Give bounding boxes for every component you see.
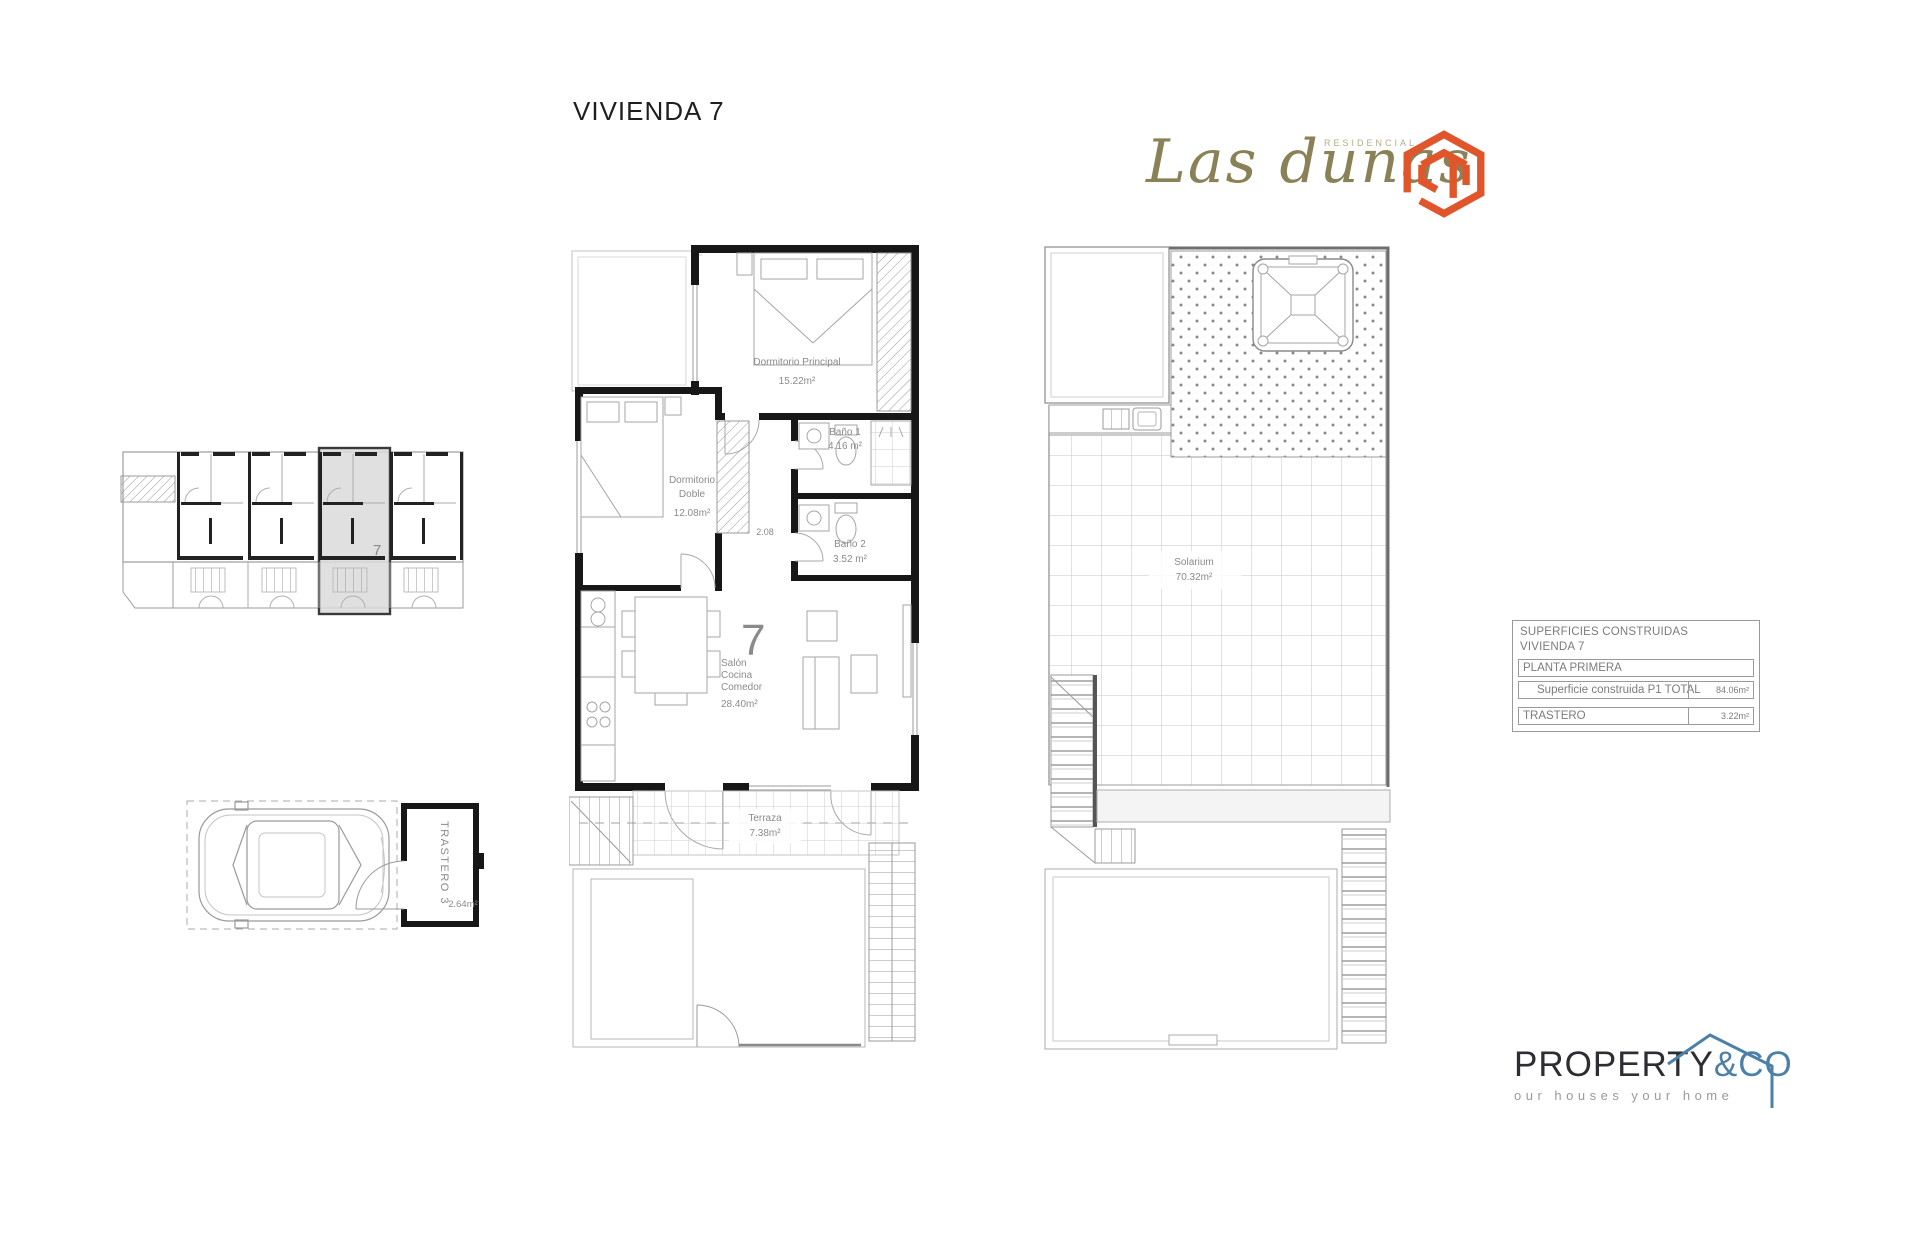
bed-principal (737, 253, 872, 365)
label-solarium-area: 70.32m² (1176, 572, 1213, 583)
site-unit7-label: 7 (373, 542, 381, 559)
label-salon-2: Cocina (721, 670, 753, 681)
wardrobe-doble (717, 421, 749, 533)
label-salon-3: Comedor (721, 682, 763, 693)
label-salon-1: Salón (721, 658, 747, 669)
areas-table-title: SUPERFICIES CONSTRUIDAS (1518, 625, 1754, 640)
brand-cube-icon (1398, 128, 1490, 220)
sofa-set (803, 605, 911, 729)
trastero-value: 3.22m² (1688, 708, 1753, 724)
areas-table-subtitle: VIVIENDA 7 (1518, 640, 1754, 655)
label-dormitorio-doble-area: 12.08m² (674, 508, 711, 519)
label-bano1-area: 4.16 m² (828, 441, 863, 452)
site-unit-walls (177, 452, 463, 560)
label-terraza: Terraza (748, 813, 782, 824)
label-solarium: Solarium (1174, 557, 1213, 568)
property-co-logo: PROPERTY&CO our houses your home (1514, 1046, 1784, 1103)
roof-plan: Solarium 70.32m² (1041, 245, 1391, 1065)
lower-garden (573, 869, 865, 1047)
label-trastero3-area: 2.64m² (448, 899, 478, 910)
kitchen-counter (581, 591, 615, 781)
bed-doble (581, 397, 681, 517)
areas-table: SUPERFICIES CONSTRUIDAS VIVIENDA 7 PLANT… (1512, 620, 1760, 732)
planta-label: PLANTA PRIMERA (1523, 662, 1622, 674)
label-dormitorio-doble-2: Doble (679, 489, 706, 500)
jacuzzi (1253, 256, 1353, 351)
solarium-tiles (1049, 435, 1386, 785)
upper-terrace-outline (572, 250, 702, 396)
stairs-left (569, 797, 633, 865)
label-bano2: Baño 2 (834, 539, 866, 550)
areas-table-gap (1518, 699, 1754, 703)
label-salon-area: 28.40m² (721, 699, 758, 710)
dining-table (622, 597, 720, 705)
superficie-label: Superficie construida P1 TOTAL (1523, 684, 1701, 696)
trastero-label: TRASTERO (1523, 710, 1586, 722)
floorplan-sheet: VIVIENDA 7 RESIDENCIAL Las dunas (0, 0, 1920, 1250)
label-trastero3: TRASTERO 3 (438, 821, 450, 905)
brand-lasdunas: RESIDENCIAL Las dunas (1146, 116, 1506, 220)
garage-plan: TRASTERO 3 2.64m² (185, 795, 485, 935)
label-pasillo-dim: 2.08 (756, 527, 774, 537)
wardrobe-principal (877, 253, 911, 411)
roof-stairs-right (1342, 829, 1386, 1043)
areas-row-planta: PLANTA PRIMERA (1518, 659, 1754, 677)
site-unit-detail (179, 452, 243, 608)
areas-row-superficie: Superficie construida P1 TOTAL 84.06m² (1518, 681, 1754, 699)
site-key-plan: 7 (115, 440, 490, 620)
roof-counter (1049, 405, 1171, 433)
main-floor-plan: 7 Dormitorio Principal 15.22m² Baño 1 4.… (569, 245, 919, 1065)
label-dormitorio-doble-1: Dormitorio (669, 475, 716, 486)
label-bano1: Baño 1 (829, 427, 861, 438)
areas-table-frame: SUPERFICIES CONSTRUIDAS VIVIENDA 7 PLANT… (1512, 620, 1760, 732)
bathroom2-fixtures (799, 503, 857, 543)
stairs-right (869, 843, 915, 1041)
parking-space (187, 801, 397, 929)
areas-row-trastero: TRASTERO 3.22m² (1518, 707, 1754, 725)
label-dormitorio-principal: Dormitorio Principal (753, 357, 840, 368)
roof-lower-patio (1045, 869, 1337, 1049)
walkway-band (1097, 790, 1390, 822)
trastero-room: TRASTERO 3 2.64m² (356, 803, 484, 927)
page-title: VIVIENDA 7 (573, 96, 725, 127)
superficie-value: 84.06m² (1688, 682, 1753, 698)
label-bano2-area: 3.52 m² (833, 554, 868, 565)
roofline-icon (1666, 1030, 1778, 1112)
label-dormitorio-principal-area: 15.22m² (779, 376, 816, 387)
label-terraza-area: 7.38m² (749, 828, 781, 839)
